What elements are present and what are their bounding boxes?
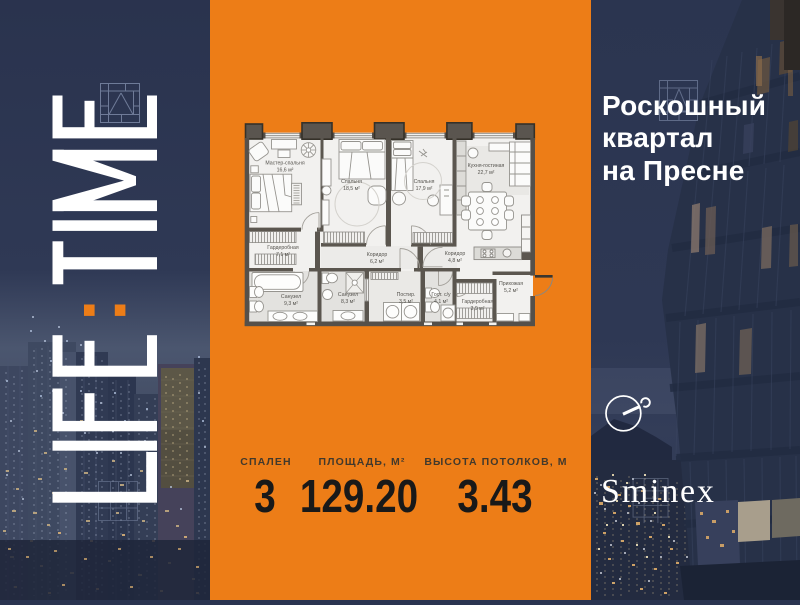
svg-text:Коридор: Коридор: [445, 251, 466, 257]
svg-text:Постир.: Постир.: [397, 292, 416, 298]
svg-text:Гост. с/у: Гост. с/у: [431, 292, 451, 298]
svg-text:18,5 м²: 18,5 м²: [343, 186, 360, 192]
svg-text:16,6 м²: 16,6 м²: [277, 168, 294, 174]
svg-text:8,3 м²: 8,3 м²: [341, 299, 355, 305]
svg-text:3,5 м²: 3,5 м²: [399, 299, 413, 305]
svg-text:Спальня: Спальня: [414, 179, 435, 185]
svg-text:9,3 м²: 9,3 м²: [284, 301, 298, 307]
svg-text:3,9 м²: 3,9 м²: [471, 306, 485, 312]
svg-text:17,9 м²: 17,9 м²: [416, 186, 433, 192]
svg-text:22,7 м²: 22,7 м²: [478, 170, 495, 176]
svg-text:Прихожая: Прихожая: [499, 281, 523, 287]
svg-text:5,2 м²: 5,2 м²: [504, 288, 518, 294]
svg-text:Спальня: Спальня: [341, 179, 362, 185]
svg-text:7,1 м²: 7,1 м²: [276, 252, 290, 258]
svg-text:Гардеробная: Гардеробная: [267, 245, 299, 251]
svg-text:Коридор: Коридор: [367, 252, 388, 258]
svg-text:Гардеробная: Гардеробная: [462, 299, 494, 305]
svg-text:Кухня-гостиная: Кухня-гостиная: [468, 163, 505, 169]
svg-text:6,2 м²: 6,2 м²: [370, 259, 384, 265]
svg-text:4,8 м²: 4,8 м²: [448, 258, 462, 264]
svg-text:Санузел: Санузел: [281, 294, 301, 300]
svg-text:4,1 м²: 4,1 м²: [434, 299, 448, 305]
svg-text:Мастер-спальня: Мастер-спальня: [265, 161, 305, 167]
svg-text:Санузел: Санузел: [338, 292, 358, 298]
